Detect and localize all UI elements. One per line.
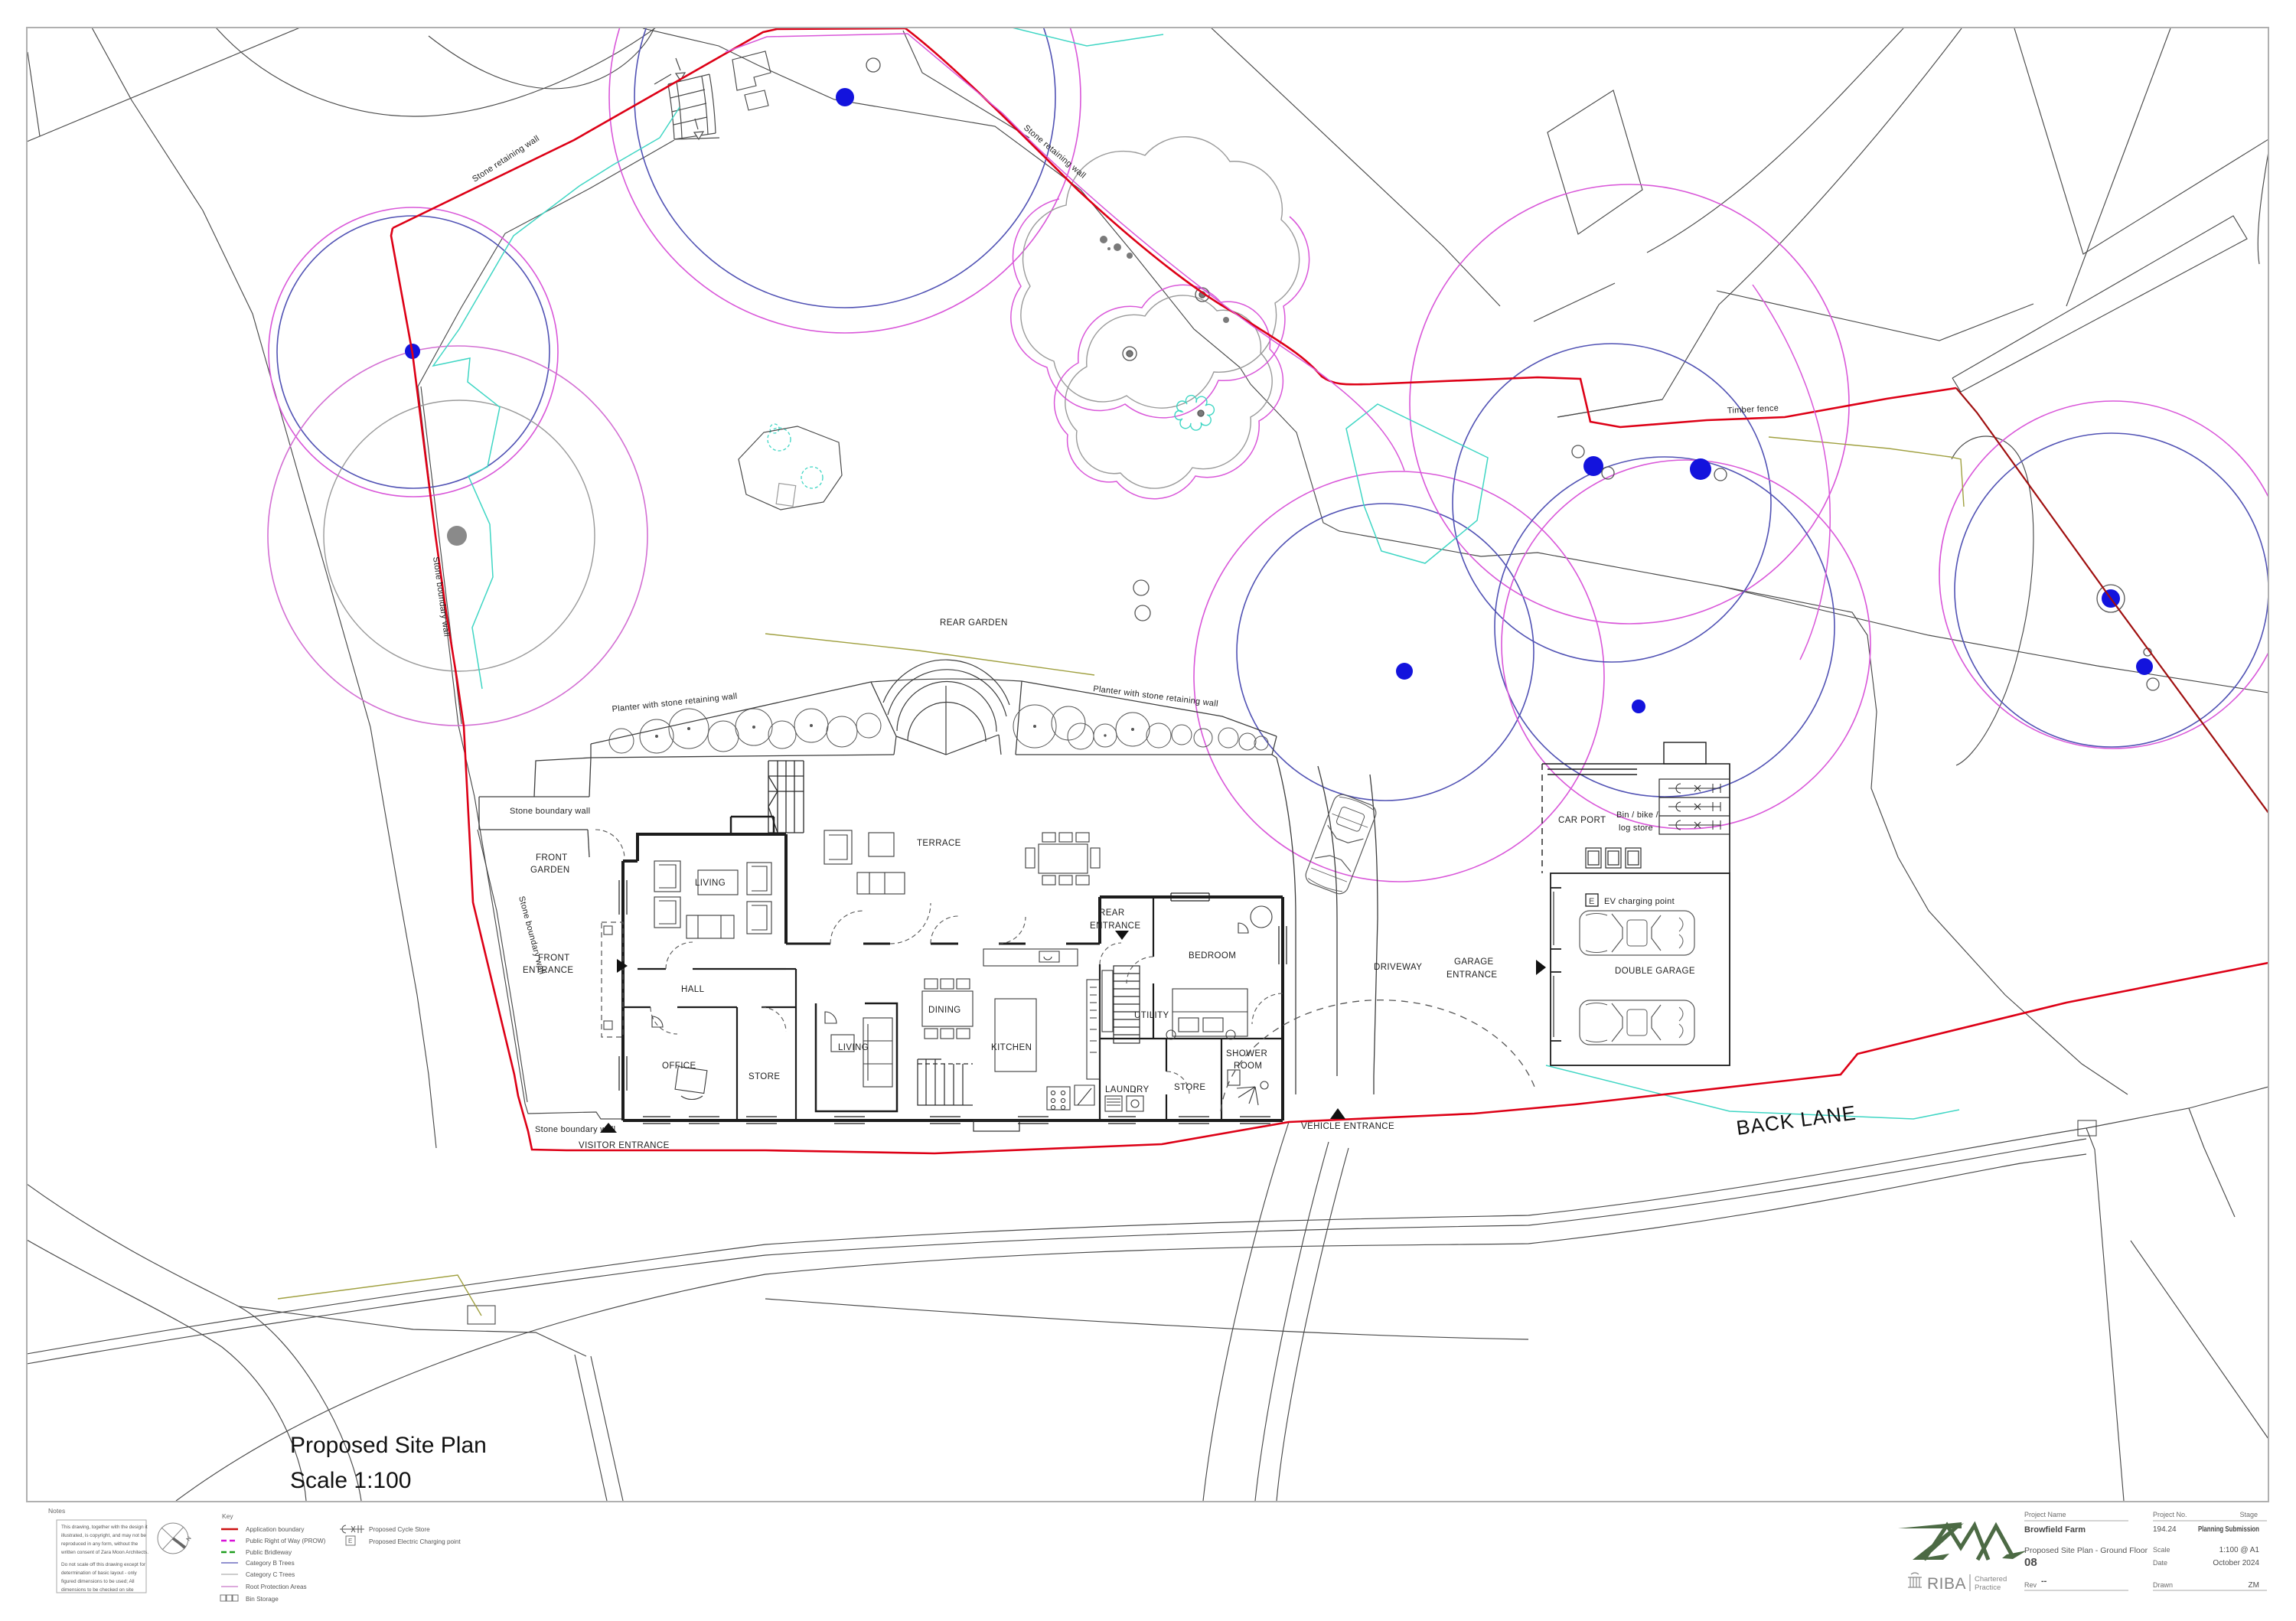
svg-text:Drawn: Drawn <box>2153 1581 2173 1589</box>
svg-text:Public Right of Way (PROW): Public Right of Way (PROW) <box>246 1538 326 1544</box>
svg-text:UTILITY: UTILITY <box>1134 1011 1169 1020</box>
svg-text:Bin Storage: Bin Storage <box>246 1596 279 1603</box>
svg-text:BEDROOM: BEDROOM <box>1189 951 1236 961</box>
svg-text:ZM: ZM <box>2249 1581 2259 1590</box>
svg-text:ENTRANCE: ENTRANCE <box>523 966 573 975</box>
svg-text:Practice: Practice <box>1975 1583 2001 1592</box>
svg-text:Stage: Stage <box>2239 1511 2258 1518</box>
svg-text:Project No.: Project No. <box>2153 1511 2187 1518</box>
svg-text:Stone boundary wall: Stone boundary wall <box>510 807 590 816</box>
svg-text:GARAGE: GARAGE <box>1454 957 1494 967</box>
svg-text:08: 08 <box>2024 1556 2037 1569</box>
svg-text:Date: Date <box>2153 1559 2167 1567</box>
svg-text:Browfield Farm: Browfield Farm <box>2024 1525 2086 1535</box>
svg-text:Root Protection Areas: Root Protection Areas <box>246 1583 307 1590</box>
svg-text:REAR: REAR <box>1099 908 1125 918</box>
svg-text:FRONT: FRONT <box>536 853 568 863</box>
svg-text:LAUNDRY: LAUNDRY <box>1105 1085 1150 1094</box>
svg-text:illustrated, is copyright, and: illustrated, is copyright, and may not b… <box>61 1533 146 1538</box>
svg-text:Notes: Notes <box>48 1507 65 1515</box>
svg-text:Category C Trees: Category C Trees <box>246 1571 295 1578</box>
svg-text:dimensions to be checked on si: dimensions to be checked on site <box>61 1587 134 1593</box>
svg-text:CAR PORT: CAR PORT <box>1558 816 1606 825</box>
svg-text:OFFICE: OFFICE <box>662 1062 696 1071</box>
svg-text:EV charging point: EV charging point <box>1604 897 1675 906</box>
svg-text:reproduced in any form, withou: reproduced in any form, without the <box>61 1541 139 1547</box>
svg-text:DRIVEWAY: DRIVEWAY <box>1374 963 1422 972</box>
svg-text:Chartered: Chartered <box>1975 1575 2007 1583</box>
svg-text:determination of basic layout: determination of basic layout - only <box>61 1570 138 1576</box>
svg-text:REAR GARDEN: REAR GARDEN <box>940 618 1008 628</box>
svg-text:HALL: HALL <box>681 985 705 994</box>
svg-text:E: E <box>1589 897 1594 906</box>
svg-text:LIVING: LIVING <box>695 879 726 888</box>
svg-text:1:100 @ A1: 1:100 @ A1 <box>2219 1546 2260 1554</box>
svg-text:Proposed Cycle Store: Proposed Cycle Store <box>369 1526 430 1533</box>
svg-text:STORE: STORE <box>1174 1083 1205 1092</box>
svg-text:VEHICLE ENTRANCE: VEHICLE ENTRANCE <box>1301 1122 1394 1131</box>
svg-text:Project Name: Project Name <box>2024 1511 2066 1518</box>
svg-text:October 2024: October 2024 <box>2213 1559 2259 1567</box>
svg-text:Key: Key <box>222 1512 233 1520</box>
svg-text:GARDEN: GARDEN <box>530 866 570 875</box>
svg-text:194.24: 194.24 <box>2153 1525 2177 1534</box>
svg-text:Scale: Scale <box>2153 1546 2170 1554</box>
svg-text:Proposed Electric Charging poi: Proposed Electric Charging point <box>369 1538 461 1545</box>
svg-text:Rev: Rev <box>2024 1581 2037 1589</box>
svg-text:Proposed Site Plan - Ground Fl: Proposed Site Plan - Ground Floor <box>2024 1546 2148 1555</box>
svg-text:TERRACE: TERRACE <box>917 839 961 848</box>
svg-text:Planning Submission: Planning Submission <box>2198 1525 2259 1534</box>
svg-text:ENTRANCE: ENTRANCE <box>1446 970 1497 980</box>
svg-text:RIBA: RIBA <box>1927 1575 1966 1593</box>
svg-text:Proposed Site Plan: Proposed Site Plan <box>290 1433 487 1458</box>
svg-text:DINING: DINING <box>928 1006 961 1015</box>
svg-text:SHOWER: SHOWER <box>1226 1049 1267 1058</box>
svg-text:Public Bridleway: Public Bridleway <box>246 1549 292 1556</box>
svg-text:This drawing, together with th: This drawing, together with the design i… <box>61 1525 148 1530</box>
svg-text:DOUBLE GARAGE: DOUBLE GARAGE <box>1615 967 1695 976</box>
svg-text:FRONT: FRONT <box>538 954 570 963</box>
svg-text:ROOM: ROOM <box>1234 1062 1262 1071</box>
svg-text:written consent of Zara Moon A: written consent of Zara Moon Architects. <box>60 1550 148 1555</box>
svg-text:VISITOR ENTRANCE: VISITOR ENTRANCE <box>579 1141 670 1150</box>
svg-text:log store: log store <box>1619 824 1653 833</box>
svg-text:figured dimensions to be used;: figured dimensions to be used; All <box>61 1579 135 1584</box>
svg-text:E: E <box>348 1538 352 1544</box>
svg-text:--: -- <box>2041 1577 2047 1586</box>
svg-text:Bin / bike /: Bin / bike / <box>1616 810 1659 820</box>
svg-text:Category B Trees: Category B Trees <box>246 1560 295 1567</box>
svg-text:STORE: STORE <box>748 1072 780 1081</box>
svg-text:Scale 1:100: Scale 1:100 <box>290 1468 411 1493</box>
svg-text:Application boundary: Application boundary <box>246 1526 305 1533</box>
svg-text:Do not scale off this drawing: Do not scale off this drawing except for <box>61 1562 146 1567</box>
svg-text:LIVING: LIVING <box>838 1043 869 1052</box>
svg-text:KITCHEN: KITCHEN <box>991 1043 1032 1052</box>
svg-text:ENTRANCE: ENTRANCE <box>1090 921 1140 931</box>
